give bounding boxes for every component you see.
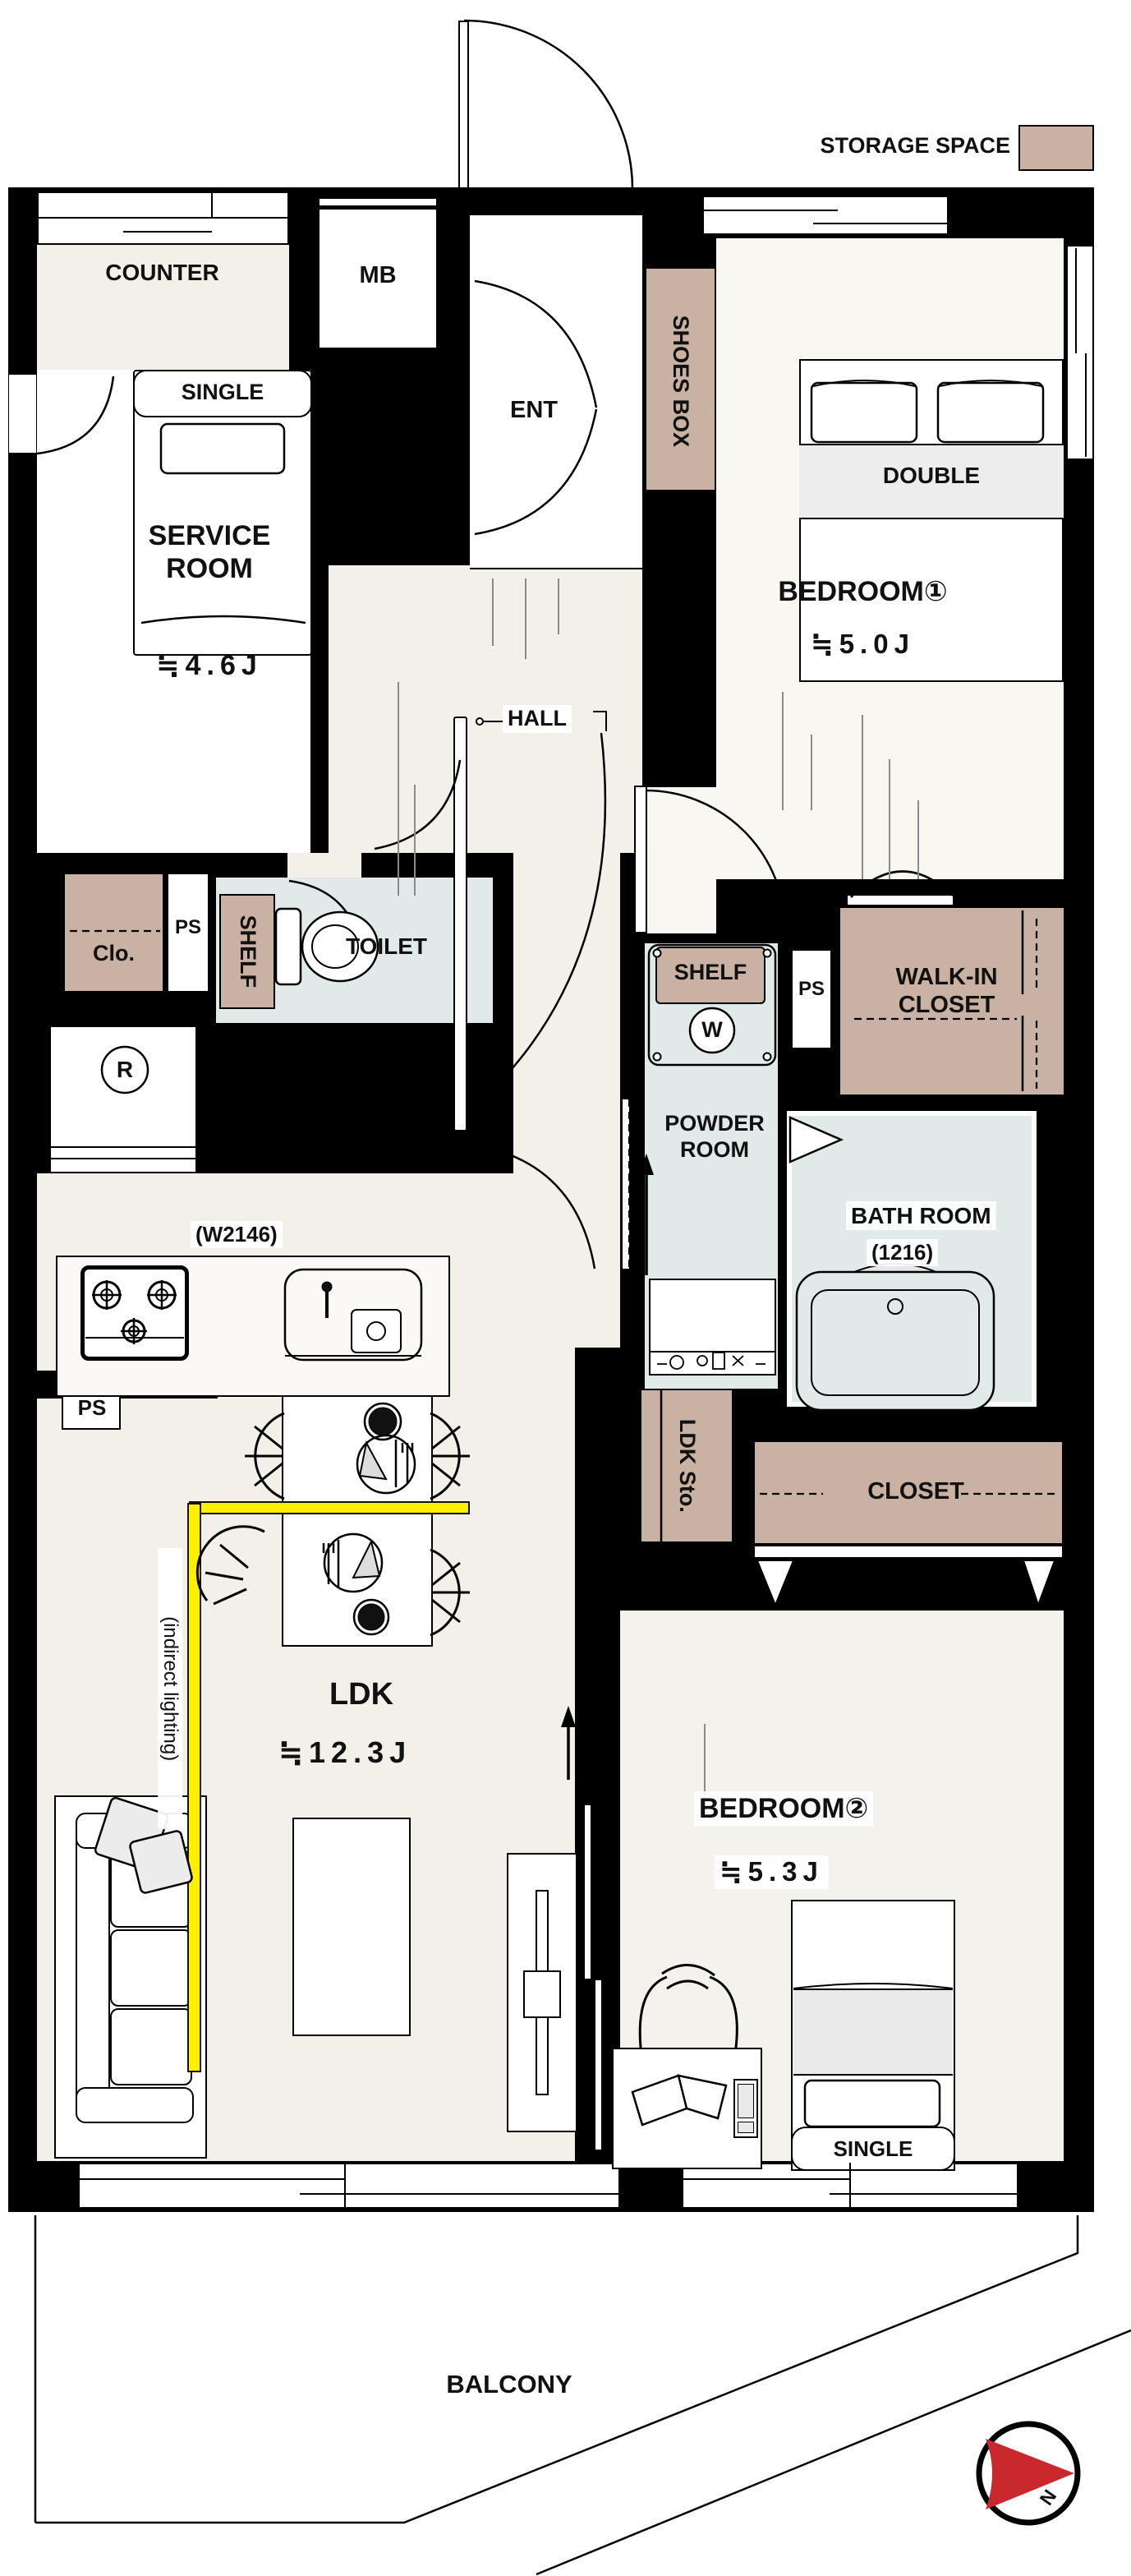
hall-label: HALL xyxy=(503,705,572,733)
vanity-fittings-icon xyxy=(657,1353,765,1369)
ps-label-3: PS xyxy=(63,1395,121,1421)
desk-chair-icon xyxy=(640,1965,737,2048)
fridge-label: R xyxy=(102,1056,148,1083)
single-bed-top-label: SINGLE xyxy=(138,380,307,406)
toilet-label: TOILET xyxy=(319,933,454,960)
mb-label: MB xyxy=(318,261,438,289)
compass-icon xyxy=(979,2424,1078,2523)
ldk-size: ≒12.3J xyxy=(201,1735,489,1770)
clo-label: Clo. xyxy=(63,941,164,967)
closet-label: CLOSET xyxy=(834,1477,998,1505)
toilet-shelf-label: SHELF xyxy=(234,890,260,1013)
ldk-sto-label: LDK Sto. xyxy=(674,1396,700,1536)
ps-label-1: PS xyxy=(167,916,209,939)
service-room-label: SERVICE ROOM xyxy=(107,519,312,585)
dining-chairs-icon xyxy=(197,1413,470,1635)
detail-lines xyxy=(37,191,1086,2209)
washer-label: W xyxy=(694,1017,730,1044)
bath-size-label: (1216) xyxy=(867,1239,938,1266)
ent-label: ENT xyxy=(480,396,587,424)
stove-burners-icon xyxy=(92,1280,177,1344)
sink-icon xyxy=(285,1270,421,1360)
bedroom2-label: BEDROOM② xyxy=(694,1791,873,1826)
floor-plan: STORAGE SPACE xyxy=(0,0,1131,2576)
laundry-shelf-label: SHELF xyxy=(657,960,764,986)
bedroom2-size: ≒5.3J xyxy=(715,1855,829,1889)
balcony-label: BALCONY xyxy=(390,2370,628,2400)
ldk-label: LDK xyxy=(308,1676,415,1713)
tableware-icon xyxy=(324,1403,415,1634)
bath-room-label: BATH ROOM xyxy=(846,1201,996,1230)
entry-arrows-icon xyxy=(561,1154,654,1780)
bath-door-icon xyxy=(790,1117,841,1162)
legend-label: STORAGE SPACE xyxy=(727,133,1010,159)
powder-room-label: POWDER ROOM xyxy=(653,1111,776,1164)
double-bed-label: DOUBLE xyxy=(799,462,1064,489)
shoes-box-label: SHOES BOX xyxy=(667,283,693,480)
kitchen-width-label: (W2146) xyxy=(191,1221,283,1248)
bedroom1-label: BEDROOM① xyxy=(721,575,1005,608)
closet-door-marks xyxy=(757,1561,1055,1606)
counter-label: COUNTER xyxy=(62,259,263,286)
bedroom1-size: ≒5.0J xyxy=(721,629,1005,661)
indirect-lighting-label: (indirect lighting) xyxy=(158,1548,182,1829)
bathtub-icon xyxy=(797,1264,994,1410)
service-room-size: ≒4.6J xyxy=(107,649,312,682)
open-book-icon xyxy=(632,2076,726,2125)
walk-in-closet-label: WALK-IN CLOSET xyxy=(850,963,1043,1019)
ps-label-2: PS xyxy=(790,978,833,1001)
single-bed-bottom-label: SINGLE xyxy=(791,2136,955,2162)
floor-hatch-lines xyxy=(398,578,918,1821)
